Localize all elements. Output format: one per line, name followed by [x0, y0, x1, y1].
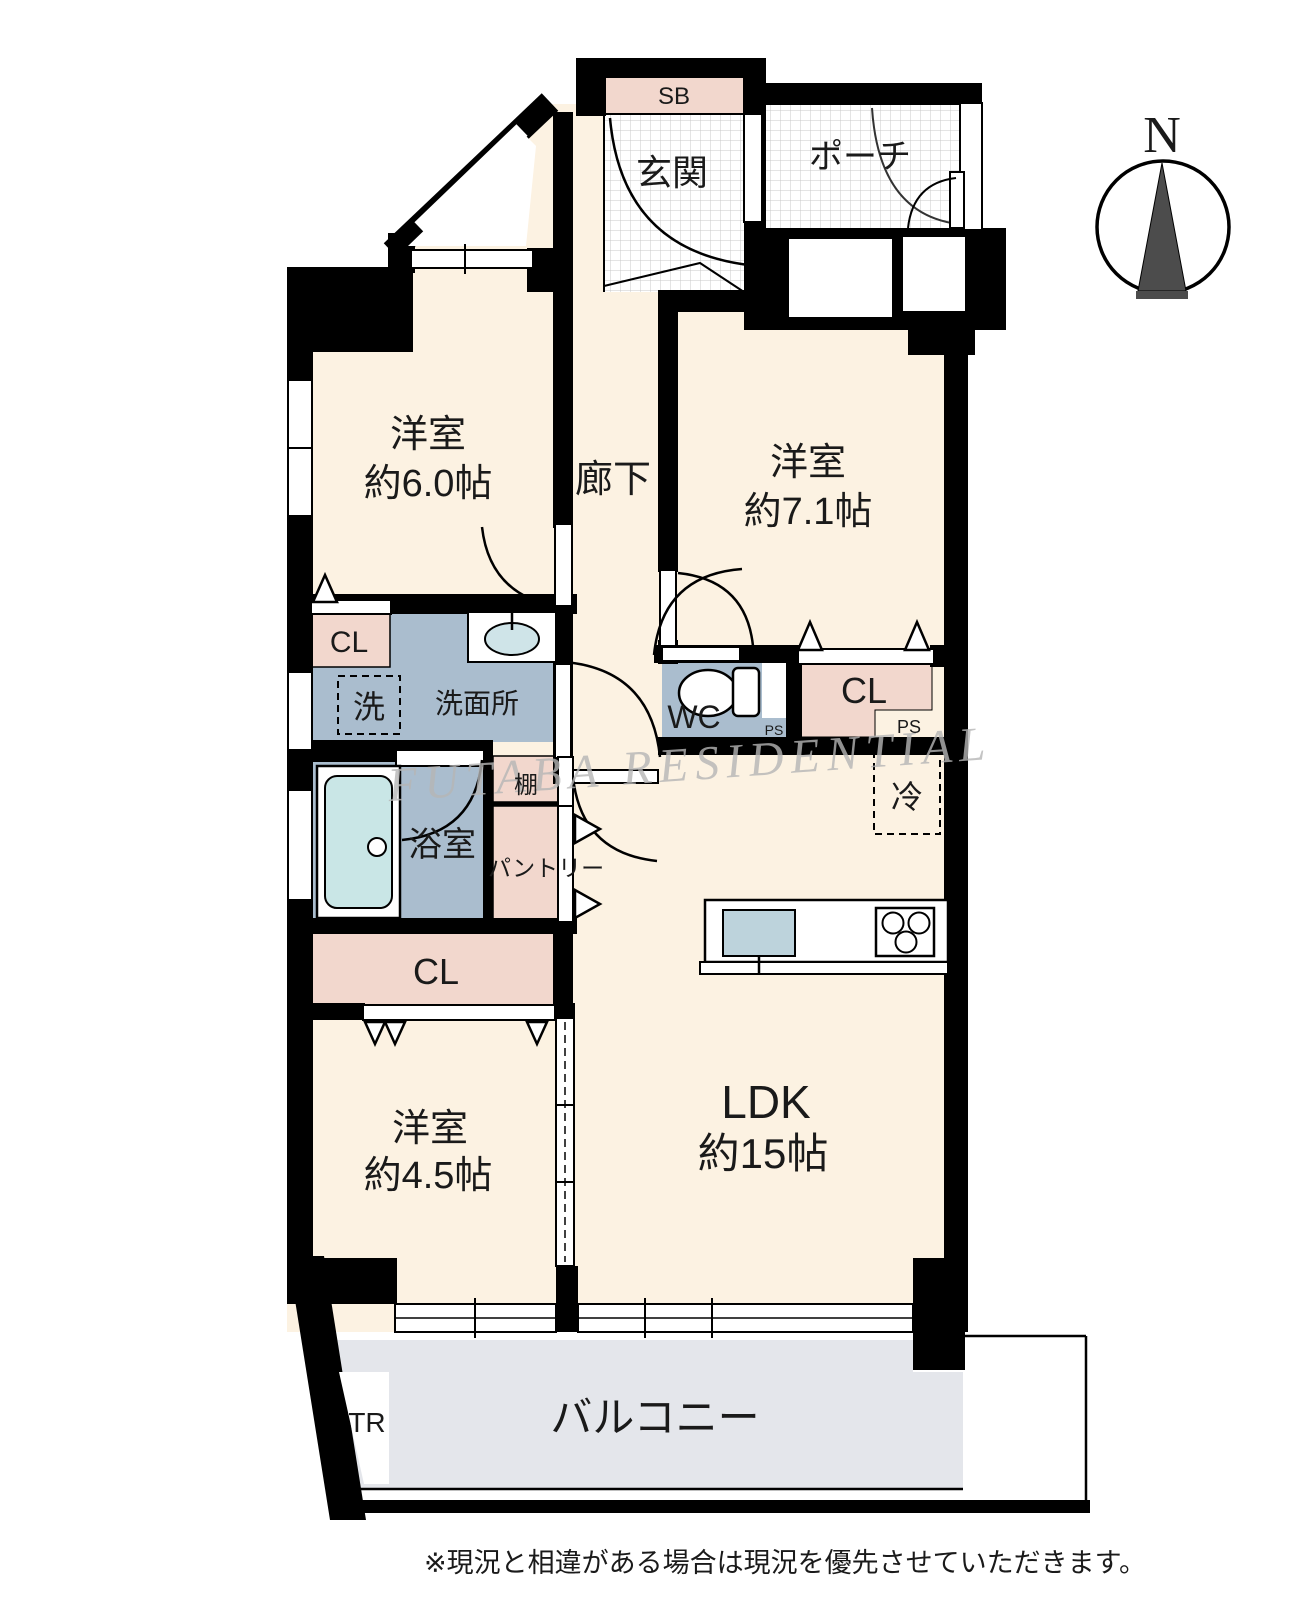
label-room2-name: 洋室	[770, 442, 846, 484]
label-porch: ポーチ	[809, 138, 911, 176]
floor-plan-page: N FUTABA RESIDENTIAL SB 玄関 ポーチ 洋室 約6.0帖 …	[0, 0, 1299, 1600]
window-left-3	[288, 790, 312, 900]
sliding-partition	[556, 1018, 574, 1266]
label-genkan: 玄関	[636, 152, 708, 193]
label-room2-size: 約7.1帖	[744, 491, 873, 533]
label-shelf: 棚	[514, 772, 538, 799]
label-ps-1: PS	[765, 722, 784, 738]
label-room3-name: 洋室	[392, 1108, 468, 1150]
label-cl-2: CL	[841, 670, 887, 711]
label-washroom: 洗面所	[435, 688, 519, 719]
label-cl-1: CL	[330, 626, 368, 659]
label-washer: 洗	[353, 689, 385, 725]
label-ldk-name: LDK	[721, 1076, 811, 1128]
window-balcony-left	[395, 1298, 556, 1338]
label-fridge: 冷	[891, 779, 923, 815]
compass-north-label: N	[1143, 107, 1181, 164]
balcony-rail	[354, 1500, 1090, 1513]
label-cl-3: CL	[413, 951, 459, 992]
label-bath: 浴室	[408, 826, 476, 864]
wash-basin	[468, 607, 556, 662]
floor-plan: N FUTABA RESIDENTIAL SB 玄関 ポーチ 洋室 約6.0帖 …	[0, 0, 1299, 1600]
label-tr: TR	[348, 1407, 385, 1438]
kitchen-counter	[700, 900, 948, 974]
label-sb: SB	[658, 83, 690, 110]
window-balcony-right	[578, 1298, 913, 1338]
disclaimer: ※現況と相違がある場合は現況を優先させていただきます。	[424, 1548, 1146, 1578]
meter-box-1	[788, 238, 893, 318]
window-left-2	[288, 672, 312, 750]
stove	[876, 908, 934, 956]
label-room1-name: 洋室	[390, 414, 466, 456]
label-room1-size: 約6.0帖	[364, 463, 493, 505]
label-wc: WC	[667, 699, 720, 735]
compass: N	[1097, 107, 1229, 299]
label-ldk-size: 約15帖	[698, 1130, 829, 1177]
label-ps-2: PS	[897, 717, 921, 737]
kitchen-sink	[723, 910, 795, 956]
meter-box-2	[902, 236, 966, 312]
label-pantry: パントリー	[488, 855, 604, 881]
label-corridor: 廊下	[575, 459, 651, 501]
label-room3-size: 約4.5帖	[364, 1155, 493, 1197]
entrance-floor	[604, 114, 744, 292]
window-left-1	[288, 380, 312, 516]
label-balcony: バルコニー	[550, 1394, 759, 1441]
